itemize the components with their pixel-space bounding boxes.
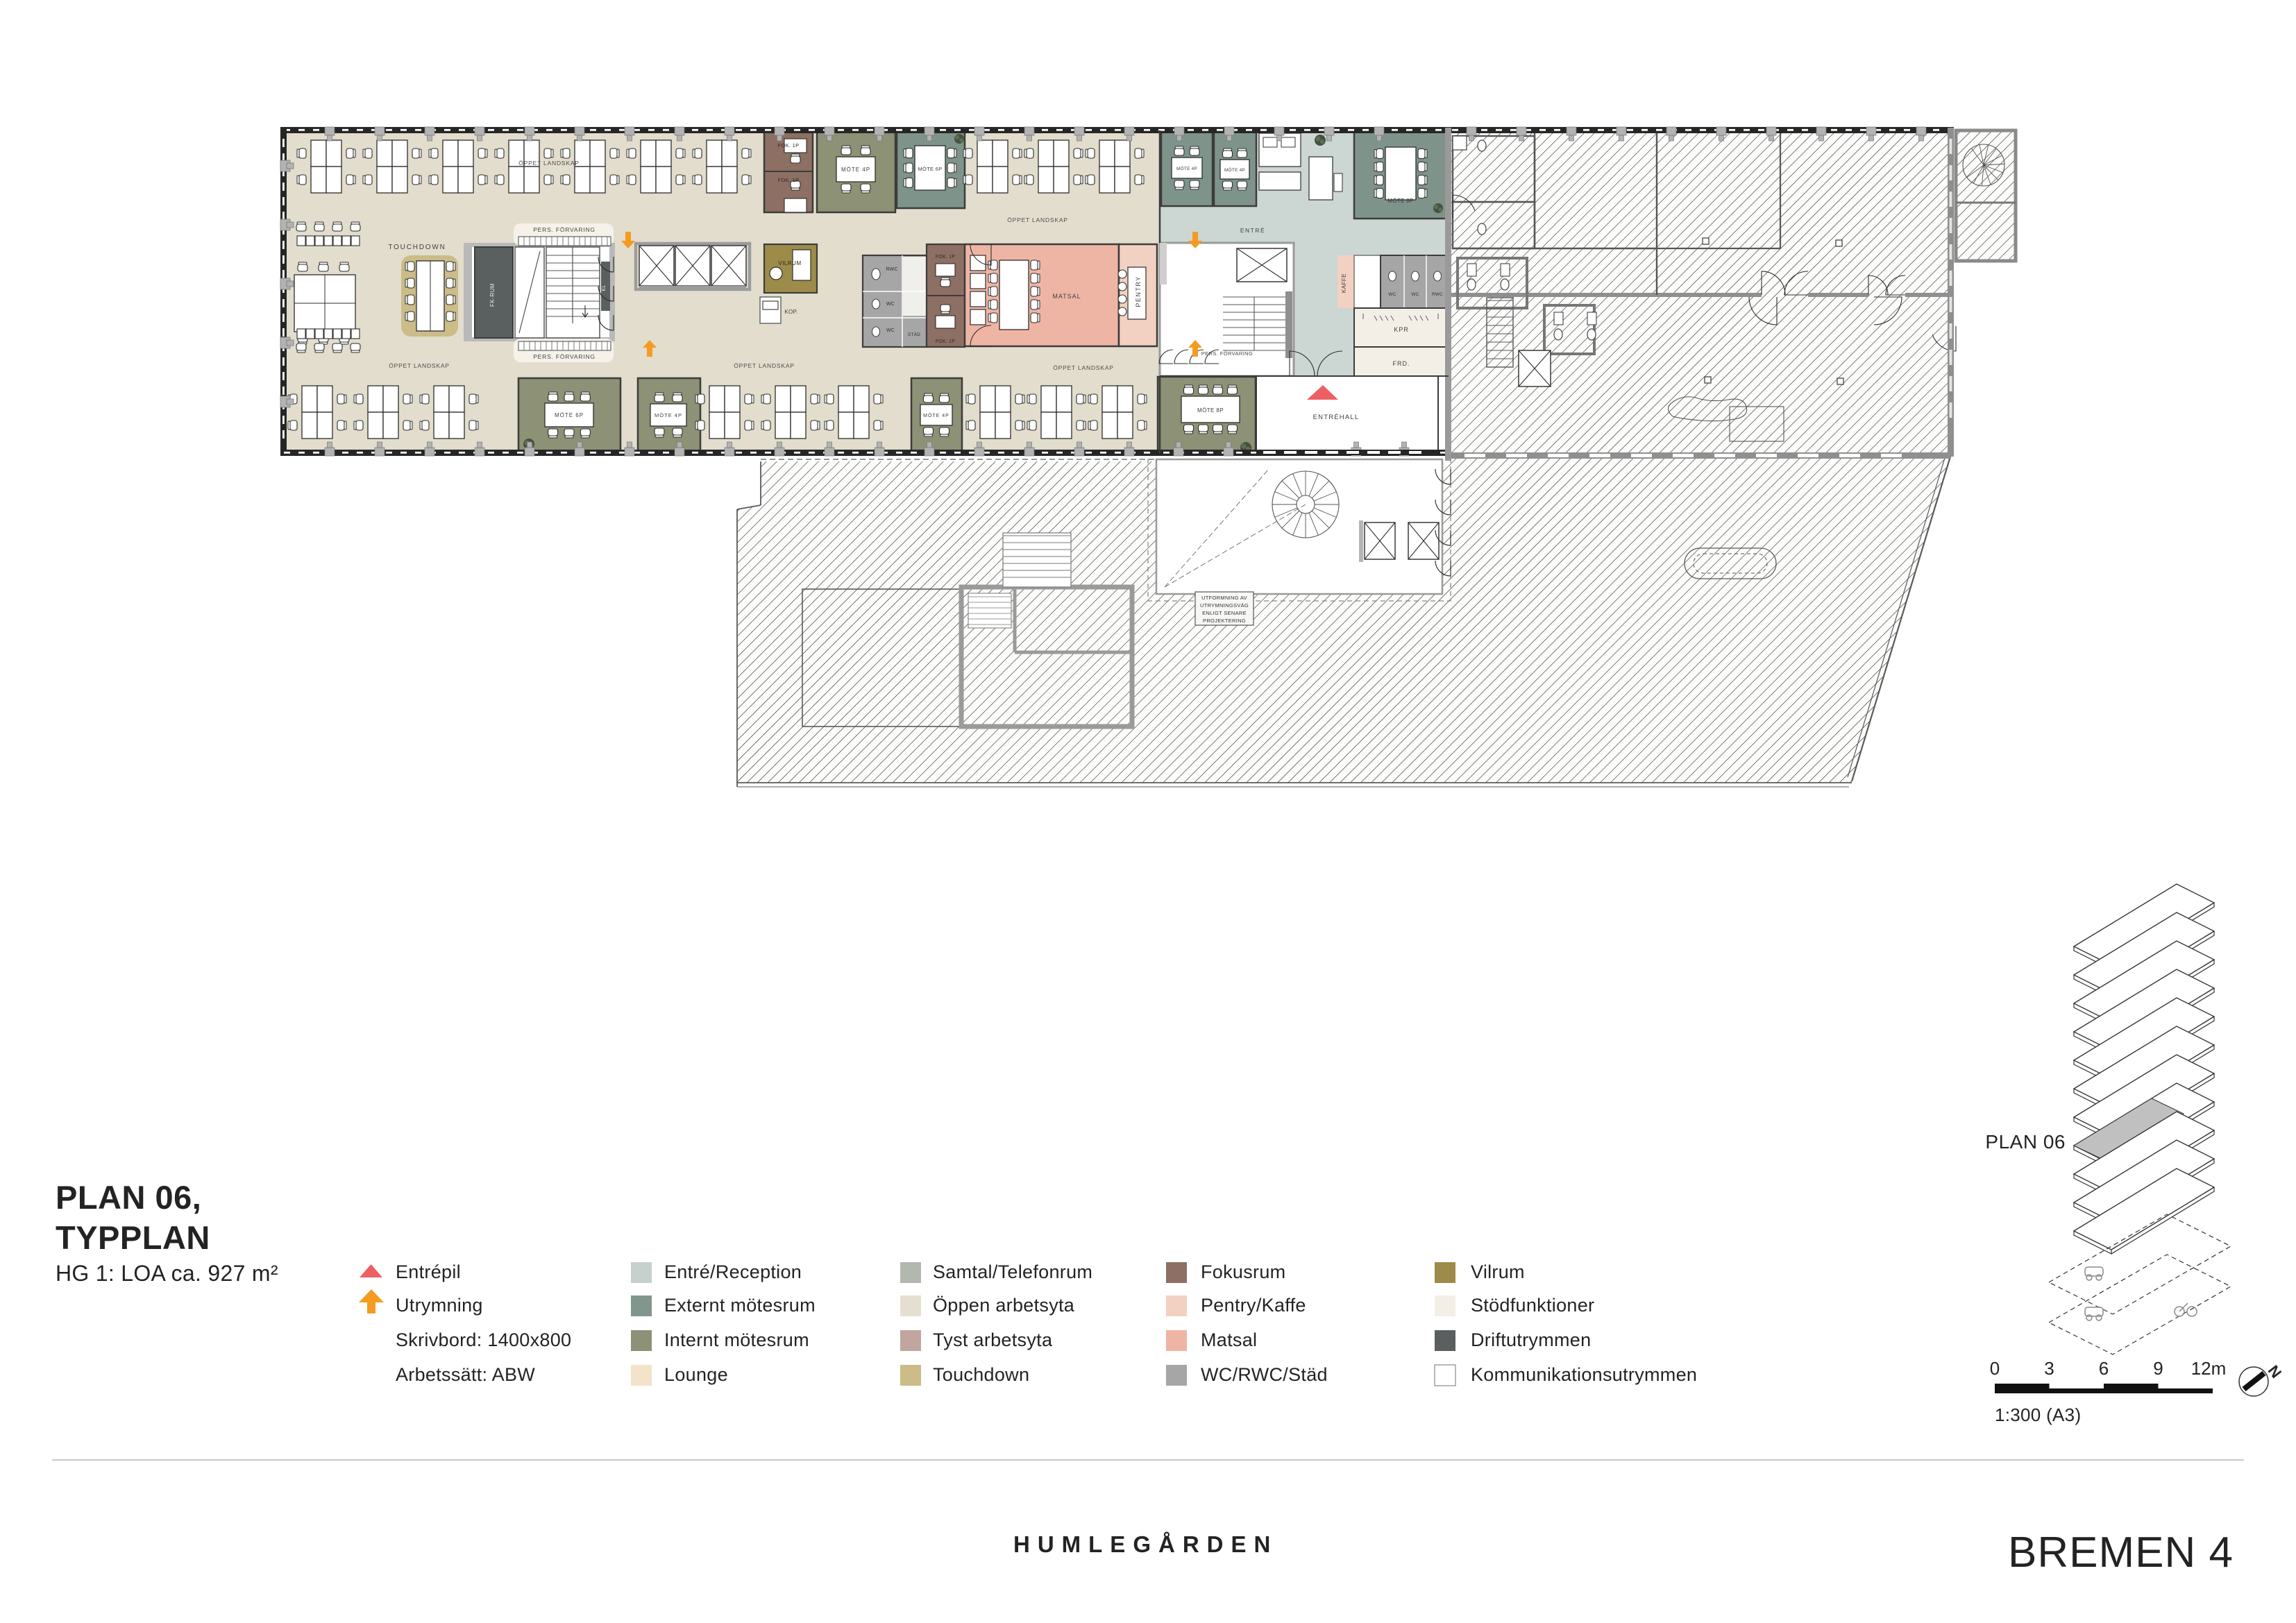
svg-text:MÖTE 8P: MÖTE 8P [1387,198,1413,204]
svg-text:RWC: RWC [1432,292,1443,297]
svg-text:PROJEKTERING: PROJEKTERING [1203,618,1246,624]
svg-text:PLAN 06: PLAN 06 [1985,1131,2066,1153]
svg-text:Samtal/Telefonrum: Samtal/Telefonrum [933,1261,1092,1282]
svg-text:PENTRY: PENTRY [1135,275,1142,307]
svg-text:Entré/Reception: Entré/Reception [664,1261,802,1282]
svg-text:Kommunikationsutrymmen: Kommunikationsutrymmen [1471,1364,1697,1385]
svg-text:1:300 (A3): 1:300 (A3) [1995,1404,2081,1425]
svg-text:PERS. FÖRVARING: PERS. FÖRVARING [533,353,596,360]
svg-text:0: 0 [1990,1358,2000,1379]
svg-text:FK-RUM: FK-RUM [489,283,496,307]
svg-text:BREMEN 4: BREMEN 4 [2008,1529,2234,1577]
svg-text:UTFORMNING AV: UTFORMNING AV [1201,595,1247,601]
svg-text:Vilrum: Vilrum [1471,1261,1525,1282]
svg-text:MÖTE 6P: MÖTE 6P [555,412,584,418]
svg-text:WC: WC [1411,292,1419,297]
svg-text:Utrymning: Utrymning [396,1295,483,1316]
svg-text:Touchdown: Touchdown [933,1364,1029,1385]
svg-text:MÖTE 4P: MÖTE 4P [655,412,682,418]
svg-text:FOK. 1P: FOK. 1P [936,255,955,260]
svg-text:KPR: KPR [1394,326,1409,333]
svg-text:VILRUM: VILRUM [778,260,801,266]
svg-text:Entrépil: Entrépil [396,1261,461,1282]
svg-text:ÖPPET LANDSKAP: ÖPPET LANDSKAP [389,362,450,369]
svg-text:PLAN 06,: PLAN 06, [56,1179,201,1216]
svg-text:WC: WC [886,328,895,333]
svg-text:Öppen arbetsyta: Öppen arbetsyta [933,1295,1075,1316]
svg-text:WC/RWC/Städ: WC/RWC/Städ [1201,1364,1328,1385]
svg-text:FRD.: FRD. [1393,360,1410,367]
svg-text:PERS. FÖRVARING: PERS. FÖRVARING [533,226,596,233]
svg-text:KOP.: KOP. [784,309,797,315]
svg-text:ÖPPET LANDSKAP: ÖPPET LANDSKAP [518,160,580,167]
svg-text:Lounge: Lounge [664,1364,728,1385]
svg-text:KAFFE: KAFFE [1341,273,1347,293]
svg-text:FOK. 1P: FOK. 1P [936,339,955,344]
svg-text:Matsal: Matsal [1201,1329,1257,1350]
svg-text:3: 3 [2044,1358,2054,1379]
svg-text:Arbetssätt: ABW: Arbetssätt: ABW [396,1364,535,1385]
svg-text:ENTRÉHALL: ENTRÉHALL [1313,414,1360,421]
svg-text:PERS. FÖRVARING: PERS. FÖRVARING [1201,350,1253,357]
svg-text:FOK. 1P: FOK. 1P [778,142,800,148]
svg-text:WC: WC [1388,292,1396,297]
svg-text:6: 6 [2099,1358,2109,1379]
svg-text:MÖTE 4P: MÖTE 4P [841,167,870,173]
svg-text:Driftutrymmen: Driftutrymmen [1471,1329,1591,1350]
svg-text:TOUCHDOWN: TOUCHDOWN [388,244,446,251]
svg-text:Tyst arbetsyta: Tyst arbetsyta [933,1329,1053,1350]
svg-text:9: 9 [2153,1358,2163,1379]
svg-text:Internt mötesrum: Internt mötesrum [664,1329,809,1350]
svg-text:TYPPLAN: TYPPLAN [56,1219,210,1256]
svg-text:Skrivbord: 1400x800: Skrivbord: 1400x800 [396,1329,571,1350]
svg-text:WC: WC [886,302,895,307]
svg-text:MÖTE 8P: MÖTE 8P [1197,407,1224,414]
svg-text:EL: EL [602,284,607,291]
svg-text:UTRYMNINGSVÄG: UTRYMNINGSVÄG [1200,602,1249,609]
svg-text:ENTRÉ: ENTRÉ [1240,227,1265,234]
svg-text:MÖTE 4P: MÖTE 4P [1176,166,1197,171]
svg-text:MATSAL: MATSAL [1052,293,1081,300]
svg-text:MÖTE 4P: MÖTE 4P [923,413,949,418]
svg-text:ÖPPET LANDSKAP: ÖPPET LANDSKAP [734,362,795,369]
svg-text:Pentry/Kaffe: Pentry/Kaffe [1201,1295,1306,1316]
svg-text:HG 1: LOA ca. 927 m²: HG 1: LOA ca. 927 m² [56,1261,278,1286]
svg-text:RWC: RWC [886,267,897,272]
svg-text:Stödfunktioner: Stödfunktioner [1471,1295,1594,1316]
svg-text:ÖPPET LANDSKAP: ÖPPET LANDSKAP [1007,216,1068,223]
svg-text:MÖTE 6P: MÖTE 6P [918,166,942,172]
svg-text:ÖPPET LANDSKAP: ÖPPET LANDSKAP [1053,364,1114,371]
svg-text:Fokusrum: Fokusrum [1201,1261,1285,1282]
svg-text:ENLIGT SENARE: ENLIGT SENARE [1202,610,1247,616]
svg-text:STÄD: STÄD [908,332,920,337]
svg-text:12m: 12m [2191,1358,2227,1379]
svg-text:FOK. 1P: FOK. 1P [778,177,800,183]
svg-text:MÖTE 4P: MÖTE 4P [1224,167,1245,173]
svg-text:HUMLEGÅRDEN: HUMLEGÅRDEN [1013,1531,1278,1557]
svg-text:Externt mötesrum: Externt mötesrum [664,1295,816,1316]
